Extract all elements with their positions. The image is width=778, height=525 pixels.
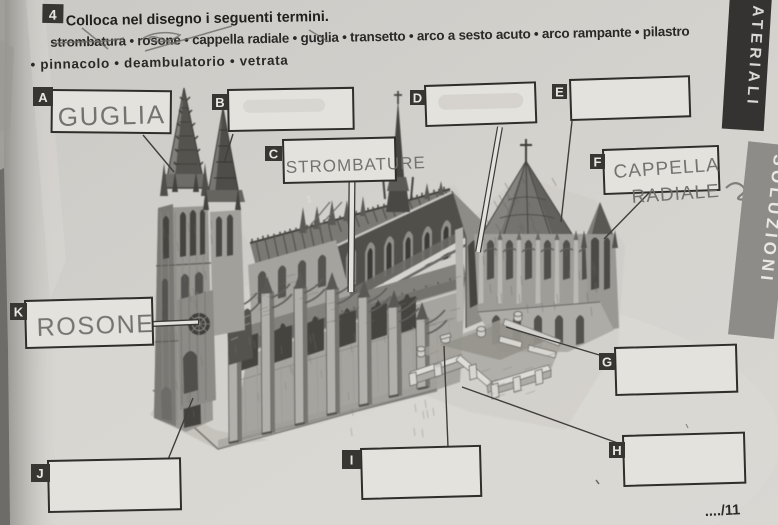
svg-text:G: G: [602, 355, 612, 370]
svg-text:B: B: [215, 95, 224, 110]
svg-text:D: D: [413, 91, 422, 106]
svg-text:ROSONE: ROSONE: [36, 310, 155, 342]
svg-text:4: 4: [49, 7, 57, 23]
svg-text:J: J: [36, 466, 43, 481]
svg-text:E: E: [555, 85, 564, 100]
svg-text:K: K: [14, 305, 24, 320]
svg-text:C: C: [269, 147, 279, 162]
svg-text:A: A: [38, 90, 48, 105]
svg-text:F: F: [594, 155, 602, 170]
svg-text:I: I: [350, 453, 354, 468]
svg-text:H: H: [612, 443, 621, 458]
svg-text:GUGLIA: GUGLIA: [57, 99, 166, 132]
svg-text:..../11: ..../11: [704, 502, 740, 520]
